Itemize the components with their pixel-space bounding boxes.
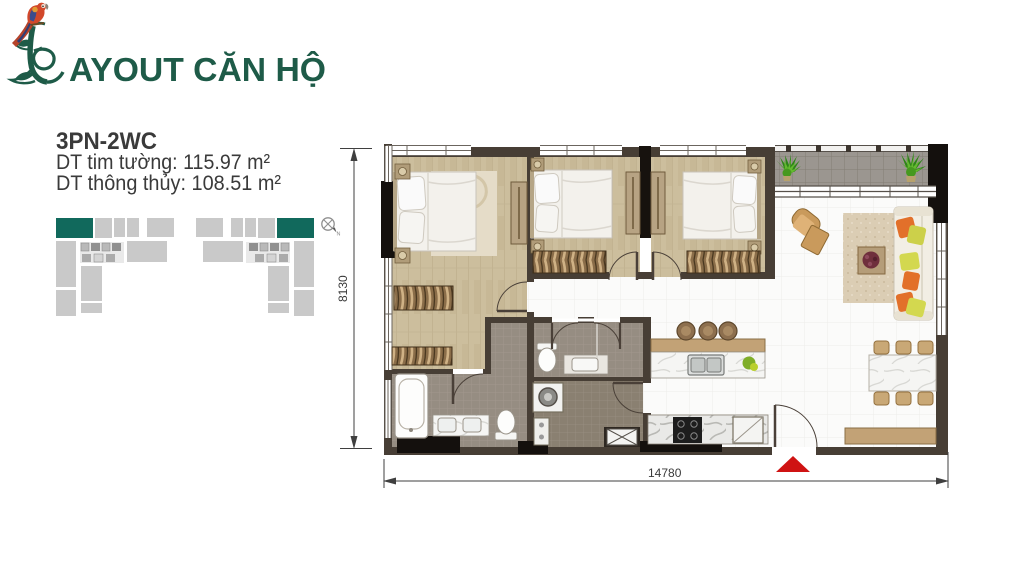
svg-text:14780: 14780 (648, 466, 682, 480)
svg-text:AYOUT CĂN HỘ: AYOUT CĂN HỘ (69, 50, 326, 88)
svg-text:8130: 8130 (336, 275, 350, 302)
svg-text:N: N (337, 232, 341, 238)
svg-text:DT thông thủy: 108.51 m²: DT thông thủy: 108.51 m² (56, 172, 281, 195)
svg-text:DT tim tường: 115.97 m²: DT tim tường: 115.97 m² (56, 151, 270, 174)
